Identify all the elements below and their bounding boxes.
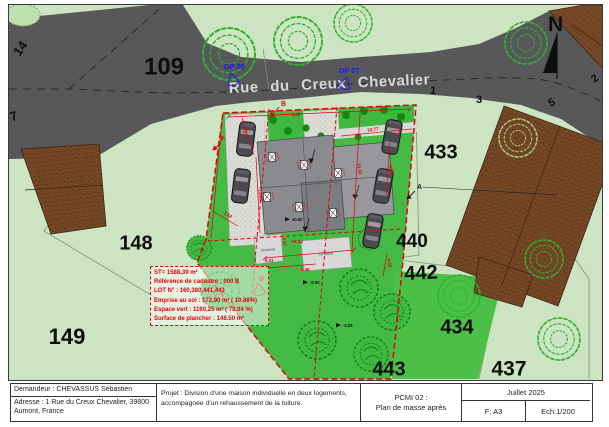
bush-icon xyxy=(340,269,378,307)
stat-espace-vert: Espace vert : 1160,25 m² ( 73.04 %) xyxy=(154,306,268,315)
site-plan-canvas: Terrasse Terrasse xyxy=(9,5,602,380)
car-icon xyxy=(231,168,251,204)
section-label-a: A xyxy=(417,184,422,191)
stat-emprise-au-sol: Emprise au sol : 172,90 m² ( 10.88%) xyxy=(154,297,268,306)
document-date: Juillet 2025 xyxy=(462,384,590,401)
parcel-label-109: 109 xyxy=(144,53,184,80)
dim-label: 5.48 xyxy=(300,267,310,273)
piece-name: Plan de masse après xyxy=(361,403,461,413)
applicant-address: Adresse : 1 Rue du Creux Chevalier, 3980… xyxy=(11,397,156,421)
elevation-label: -0.05 xyxy=(343,323,353,328)
bush-icon xyxy=(374,294,410,330)
north-label: N xyxy=(548,13,563,36)
paper-format: F: A3 xyxy=(462,401,526,421)
site-plan-map: Terrasse Terrasse xyxy=(8,4,603,381)
stat-lot-numbers: LOT N° : 160,380,441,443 xyxy=(154,287,268,296)
road-number-3: 3 xyxy=(476,94,482,106)
elevation-label: ±0.00 xyxy=(292,217,303,222)
title-block-meta-cell: Juillet 2025 F: A3 Ech:1/200 xyxy=(462,384,590,421)
title-block-project-cell: Projet : Division d'une maison individue… xyxy=(157,384,361,421)
section-label-b: B xyxy=(281,101,286,108)
dim-label: 9.31 xyxy=(264,258,274,264)
parcel-label-433: 433 xyxy=(424,141,457,163)
dim-label: 44.34 xyxy=(291,239,303,245)
bush-icon xyxy=(298,321,336,359)
parcel-label-443: 443 xyxy=(372,358,405,380)
applicant-name: Demandeur : CHEVASSUS Sébastien xyxy=(11,384,156,397)
stat-surface-plancher: Surface de plancher : 148.50 m² xyxy=(154,315,268,324)
site-statistics-box: ST= 1588,39 m² Référence de cadastre : 0… xyxy=(150,266,269,326)
stat-reference-cadastre: Référence de cadastre : 000 B xyxy=(154,278,268,287)
title-block-applicant-cell: Demandeur : CHEVASSUS Sébastien Adresse … xyxy=(11,384,157,421)
drawing-scale: Ech:1/200 xyxy=(526,401,590,421)
stat-surface-terrain: ST= 1588,39 m² xyxy=(154,269,268,278)
title-block-piece-cell: PCMI 02 : Plan de masse après xyxy=(361,384,462,421)
dp07-label: DP 07 xyxy=(339,66,360,75)
parcel-label-440: 440 xyxy=(396,231,428,252)
parcel-label-148: 148 xyxy=(119,232,152,254)
parcel-label-437: 437 xyxy=(491,358,526,380)
site-plan-page: Terrasse Terrasse xyxy=(0,0,609,427)
title-block: Demandeur : CHEVASSUS Sébastien Adresse … xyxy=(10,383,593,422)
parcel-label-434: 434 xyxy=(440,316,474,338)
parcel-label-149: 149 xyxy=(49,324,86,349)
piece-reference: PCMI 02 : xyxy=(361,393,461,403)
dim-label: 9.60 xyxy=(291,112,301,117)
project-description-line2: accompagnée d'un rehaussement de la toit… xyxy=(161,399,356,409)
project-description-line1: Projet : Division d'une maison individue… xyxy=(161,389,356,399)
parcel-label-442: 442 xyxy=(404,261,438,285)
elevation-label: -0.05 xyxy=(310,280,320,285)
dp08-label: DP 08 xyxy=(224,62,245,71)
